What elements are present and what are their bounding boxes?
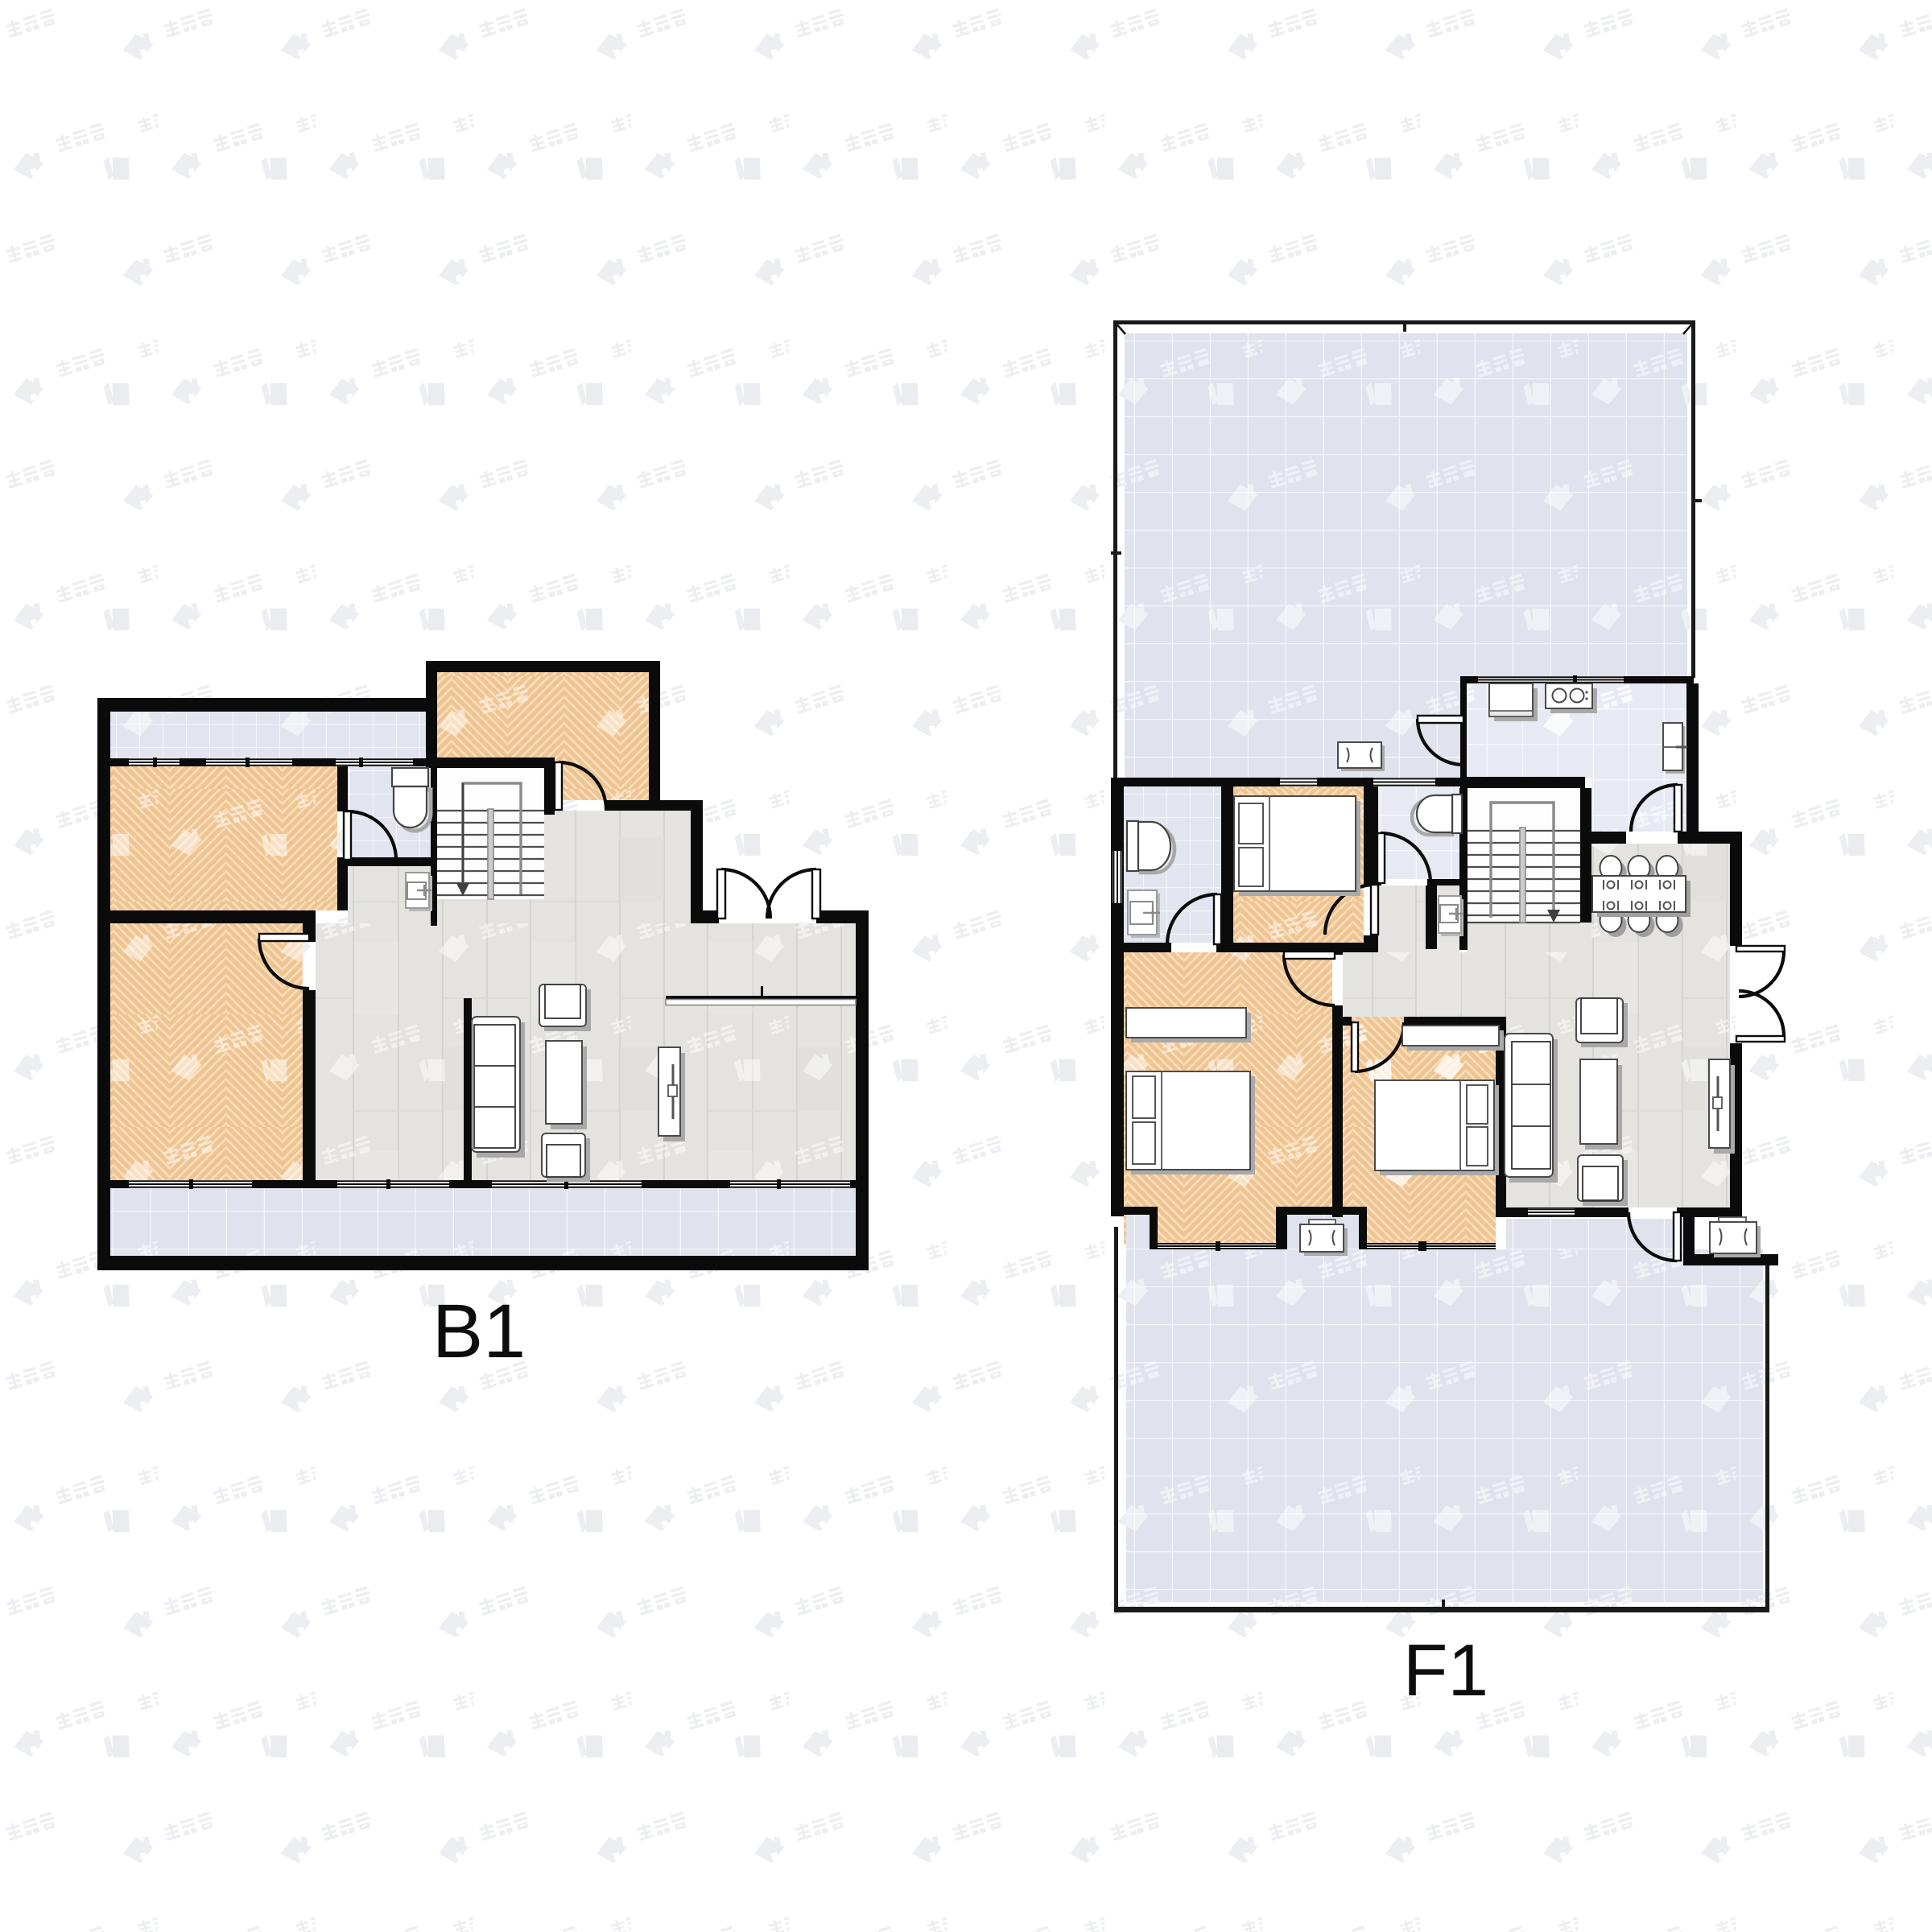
svg-text:F1: F1	[1403, 1630, 1488, 1711]
svg-text:B1: B1	[432, 1289, 526, 1374]
